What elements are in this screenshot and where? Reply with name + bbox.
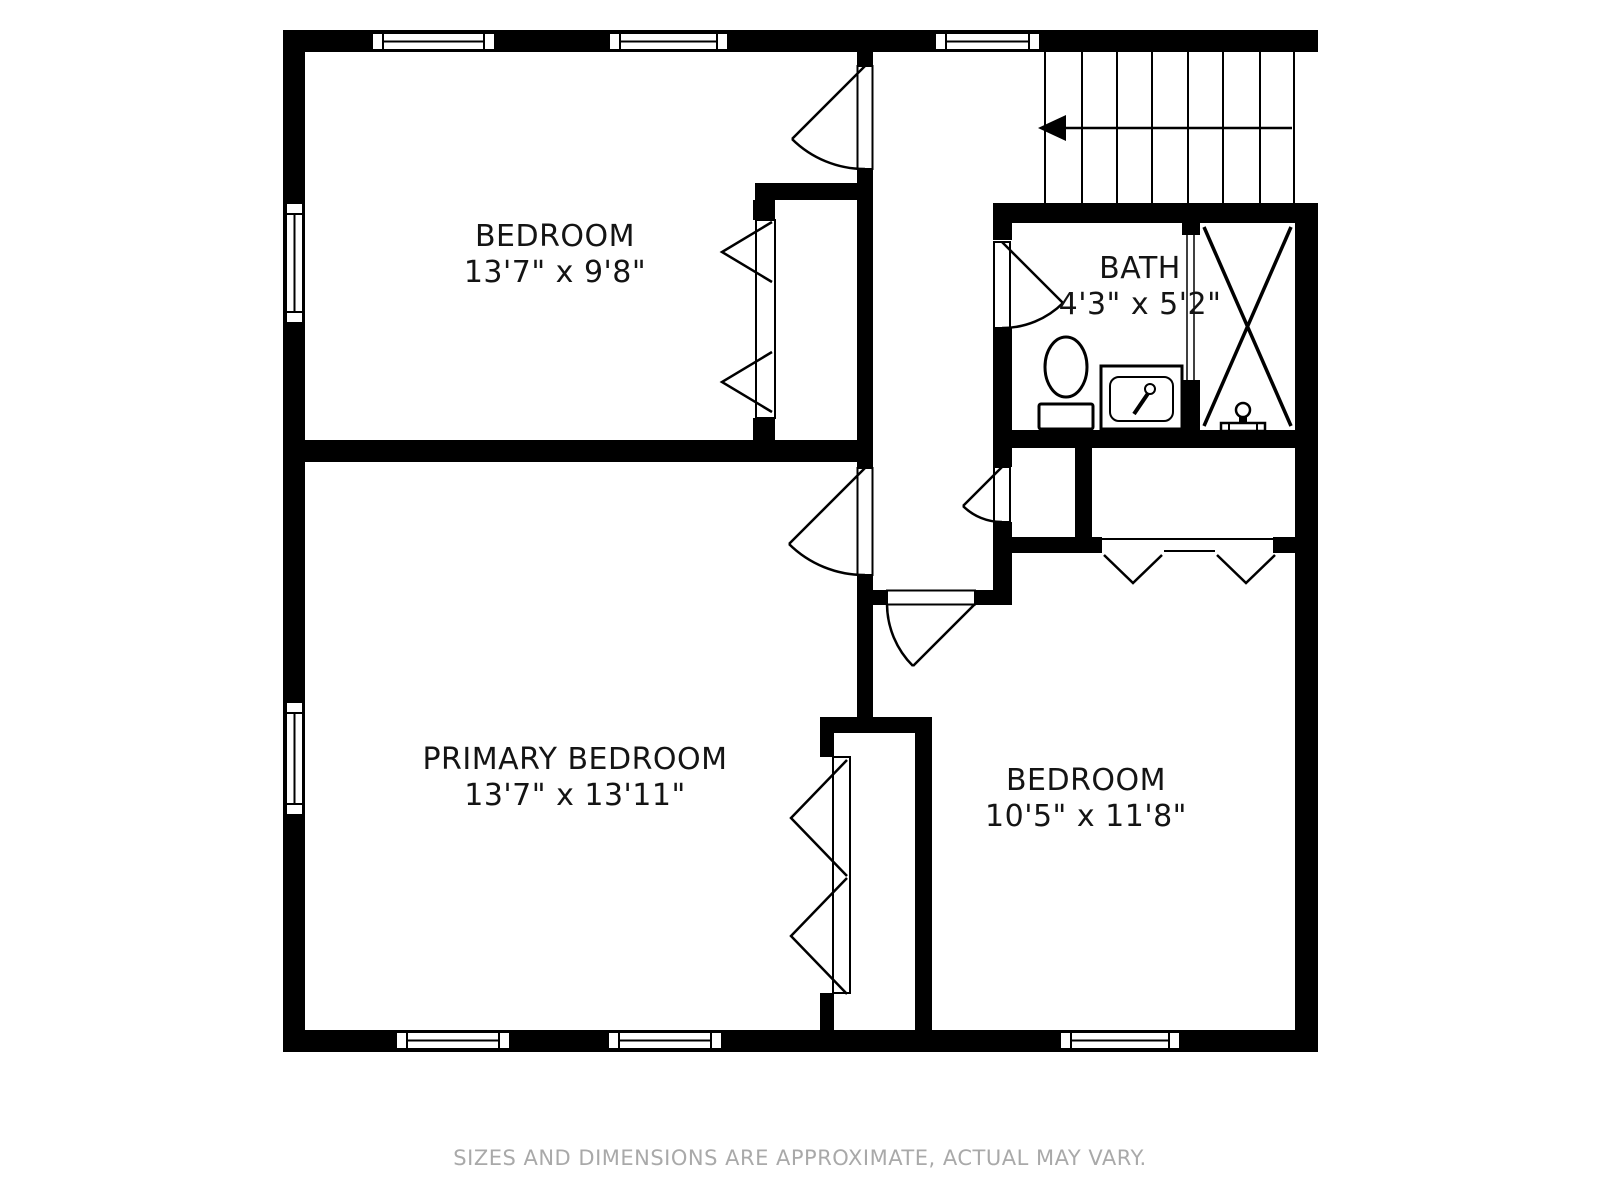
wall-bath-bottom [993, 430, 1295, 448]
wall-hall-south-left [857, 590, 887, 605]
wall-bedroom-divider [305, 440, 873, 462]
bifold-chevron [1104, 555, 1162, 583]
stairs [1038, 52, 1292, 203]
window-top-3 [935, 33, 1040, 50]
stairwell-right-edge [1293, 52, 1295, 203]
wall-closet1-top [755, 183, 873, 200]
window-bottom-1 [396, 1032, 510, 1049]
disclaimer-text: SIZES AND DIMENSIONS ARE APPROXIMATE, AC… [453, 1146, 1146, 1170]
wall-closet2-right [915, 733, 932, 1030]
sink-icon [1101, 366, 1182, 429]
window-left-1 [286, 203, 303, 323]
room-name: BEDROOM [464, 219, 646, 255]
doors [789, 66, 1063, 666]
wall-shower-stub-bottom [1182, 380, 1200, 430]
room-name: PRIMARY BEDROOM [422, 742, 727, 778]
closet-primary-bifold [791, 757, 850, 994]
room-dimensions: 13'7" x 13'11" [422, 778, 727, 814]
wall-hall-left-a [857, 52, 873, 66]
wall-left [283, 30, 305, 1052]
door-primary-bedroom [789, 468, 873, 575]
room-dimensions: 13'7" x 9'8" [464, 255, 646, 291]
wall-hall-south-right [975, 590, 1012, 605]
wall-closet-front-left [993, 537, 1102, 553]
room-dimensions: 10'5" x 11'8" [985, 799, 1187, 835]
door-linen-closet [963, 467, 1010, 522]
room-label-bath: BATH 4'3" x 5'2" [1059, 251, 1222, 323]
room-name: BATH [1059, 251, 1222, 287]
wall-hall-right-a [993, 223, 1012, 240]
closet-bedroom-top-bifold [722, 220, 775, 418]
door-bedroom-right [887, 591, 975, 667]
door-bedroom-top [792, 66, 873, 169]
wall-linen-right [1075, 448, 1092, 537]
wall-closet2-top [820, 717, 932, 733]
wall-bath-top [993, 203, 1318, 223]
closet-bedroom-right-bifold [1102, 539, 1275, 583]
room-name: BEDROOM [985, 763, 1187, 799]
room-dimensions: 4'3" x 5'2" [1059, 287, 1222, 323]
wall-closet2-stub-top [820, 733, 834, 757]
door-bath [994, 242, 1063, 328]
floor-plan-drawing [0, 0, 1600, 1200]
shower-valve-icon [1221, 403, 1265, 431]
wall-closet1-stub-top [753, 200, 775, 220]
window-top-1 [372, 33, 495, 50]
stair-direction-arrow [1038, 115, 1066, 141]
wall-hall-left-b [857, 169, 873, 468]
wall-shower-stub-top [1182, 223, 1200, 235]
bifold-chevron [1217, 555, 1275, 583]
room-label-bedroom-top: BEDROOM 13'7" x 9'8" [464, 219, 646, 291]
floor-plan: BEDROOM 13'7" x 9'8" PRIMARY BEDROOM 13'… [0, 0, 1600, 1200]
wall-closet-front-right [1273, 537, 1295, 553]
toilet-icon [1039, 337, 1093, 429]
room-label-bedroom-right: BEDROOM 10'5" x 11'8" [985, 763, 1187, 835]
window-bottom-2 [608, 1032, 722, 1049]
window-bottom-3 [1060, 1032, 1180, 1049]
room-label-primary-bedroom: PRIMARY BEDROOM 13'7" x 13'11" [422, 742, 727, 814]
window-left-2 [286, 702, 303, 815]
interior-walls [305, 52, 1318, 1030]
window-top-2 [609, 33, 728, 50]
wall-closet2-stub-bottom [820, 993, 834, 1030]
wall-right [1295, 203, 1318, 1052]
wall-closet1-stub-bottom [753, 418, 775, 440]
